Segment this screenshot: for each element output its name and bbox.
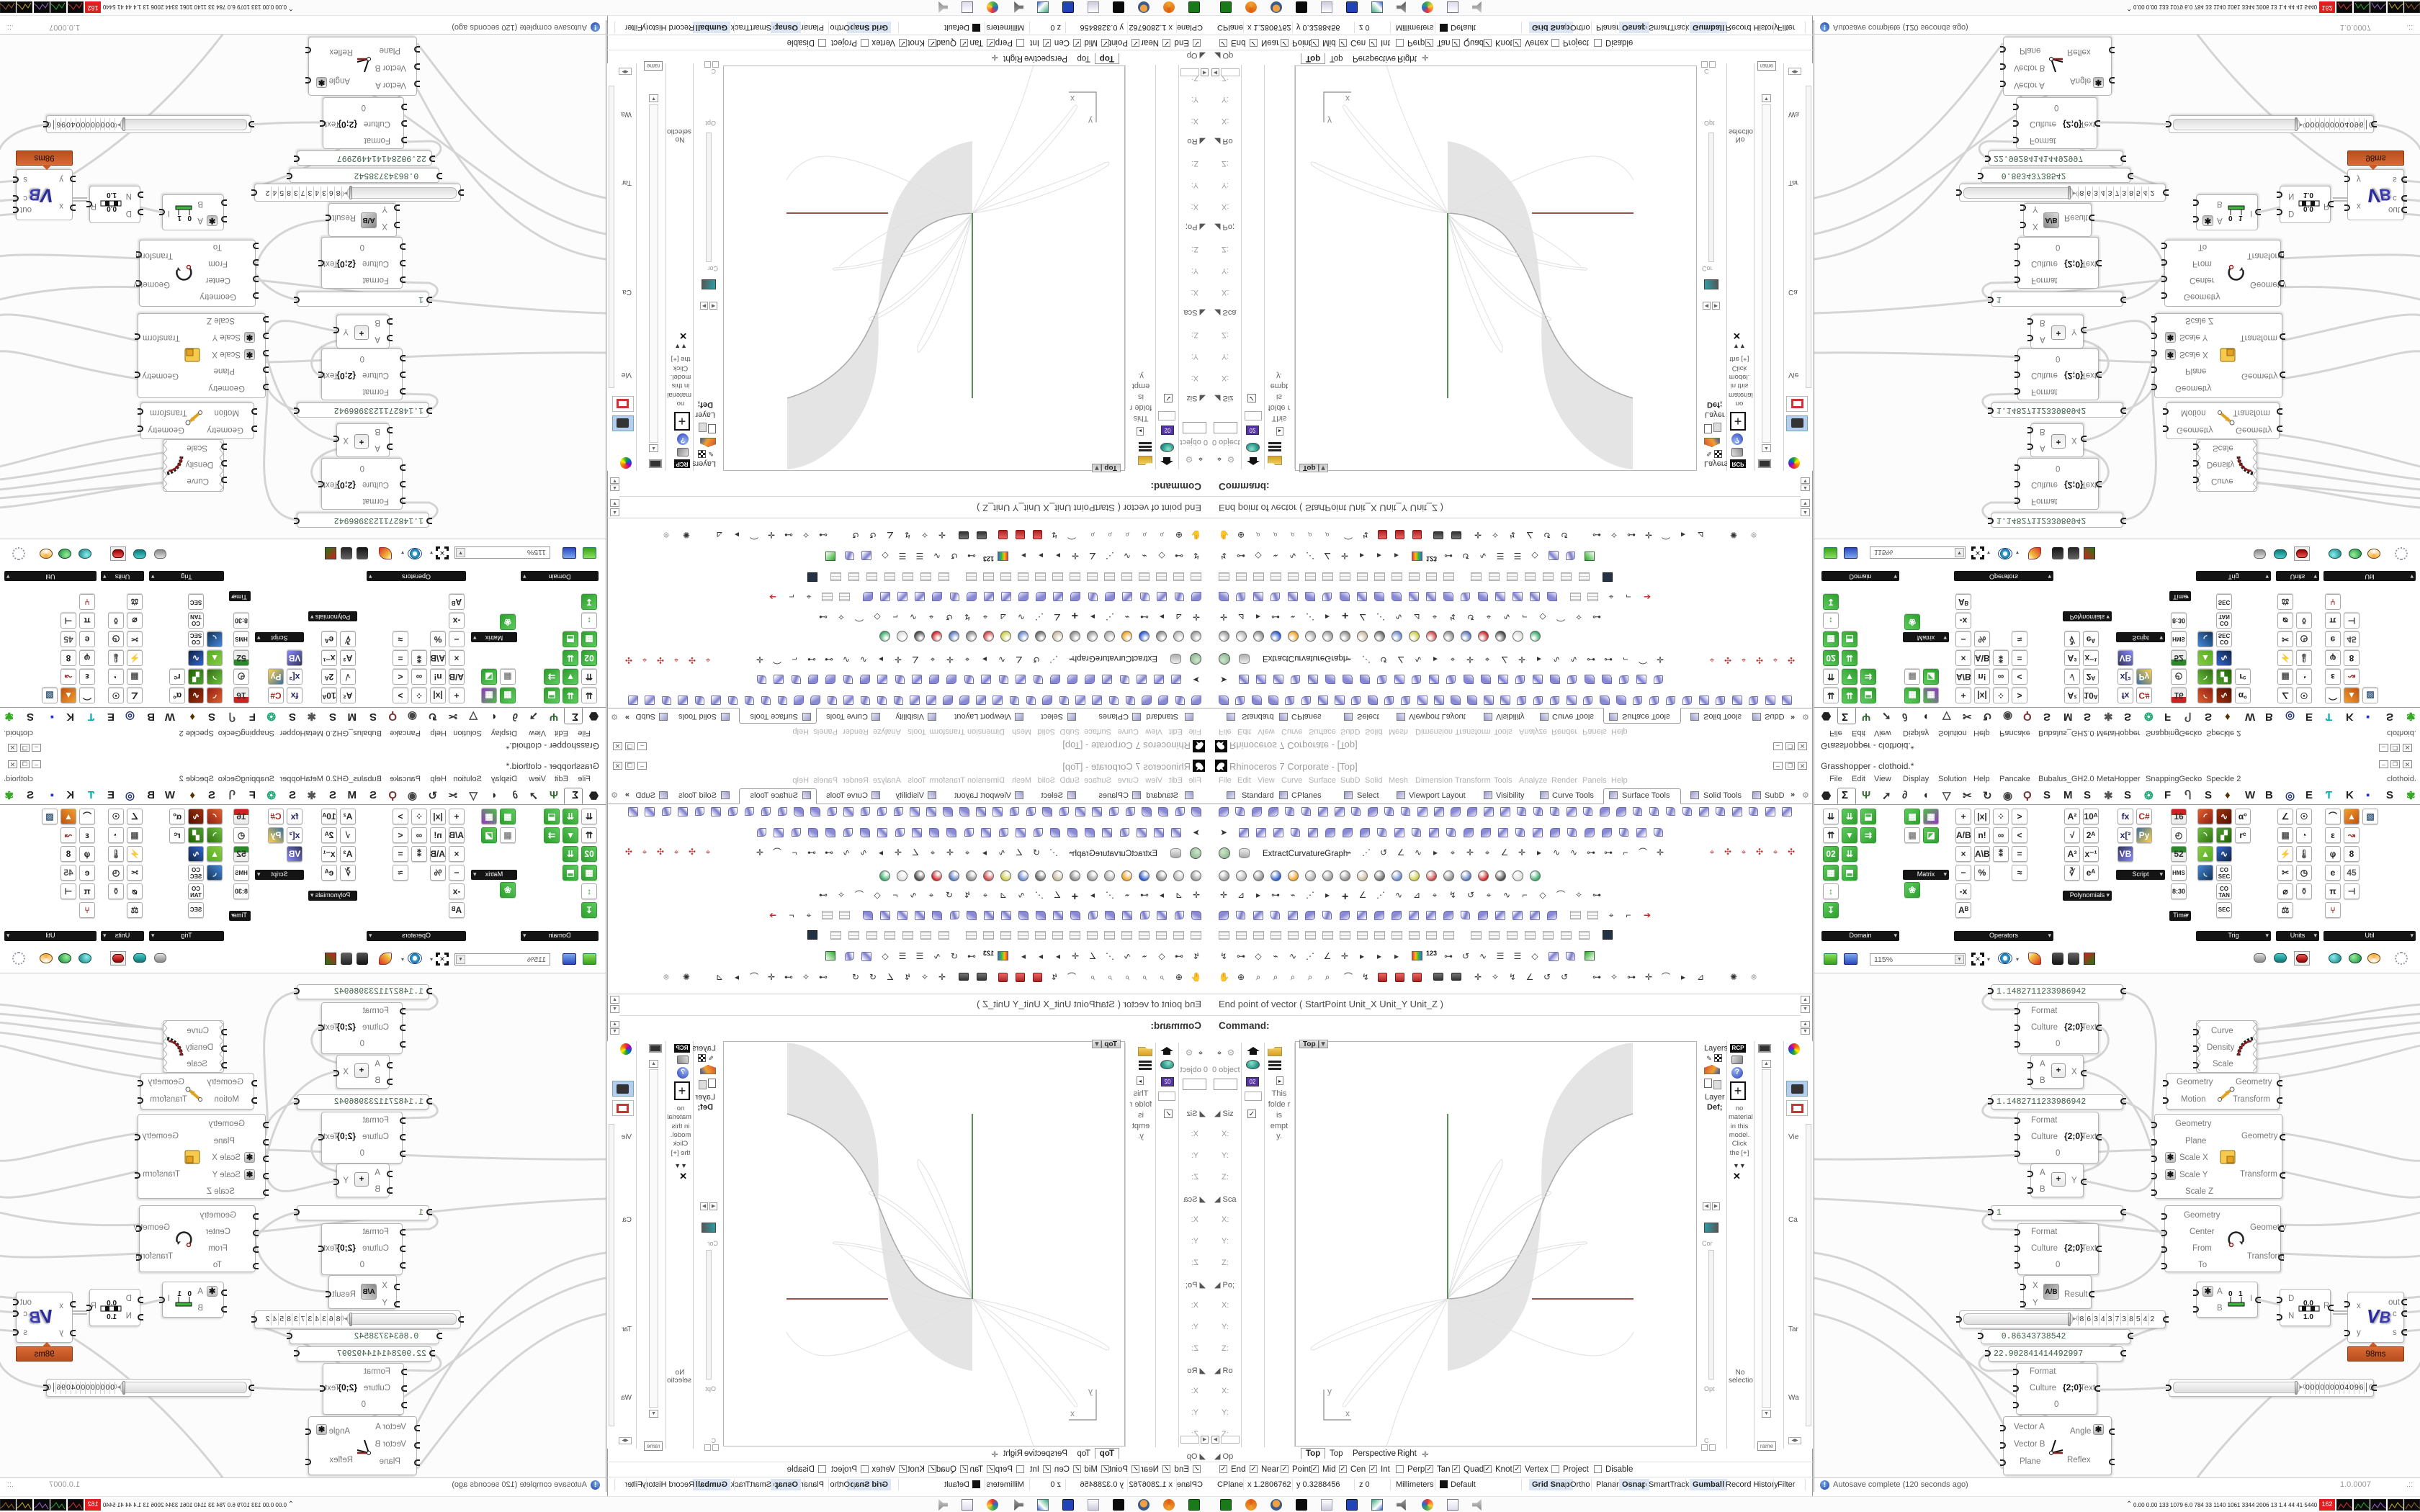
svg-text:y: y [1088, 116, 1093, 126]
svg-text:1.0: 1.0 [107, 192, 117, 199]
svg-text:1: 1 [2238, 214, 2243, 222]
svg-text:1.0: 1.0 [2303, 192, 2313, 199]
svg-text:x: x [1070, 94, 1075, 104]
svg-text:1: 1 [177, 214, 181, 222]
svg-text:x: x [1345, 1408, 1350, 1418]
svg-text:x: x [1070, 1408, 1075, 1418]
svg-text:1.0: 1.0 [2303, 1313, 2313, 1320]
svg-text:x: x [1345, 94, 1350, 104]
svg-text:y: y [1327, 116, 1332, 126]
svg-text:1.0: 1.0 [107, 1313, 117, 1320]
svg-text:1: 1 [2238, 1290, 2243, 1298]
svg-text:y: y [1088, 1386, 1093, 1396]
svg-text:y: y [1327, 1386, 1332, 1396]
svg-text:1: 1 [177, 1290, 181, 1298]
